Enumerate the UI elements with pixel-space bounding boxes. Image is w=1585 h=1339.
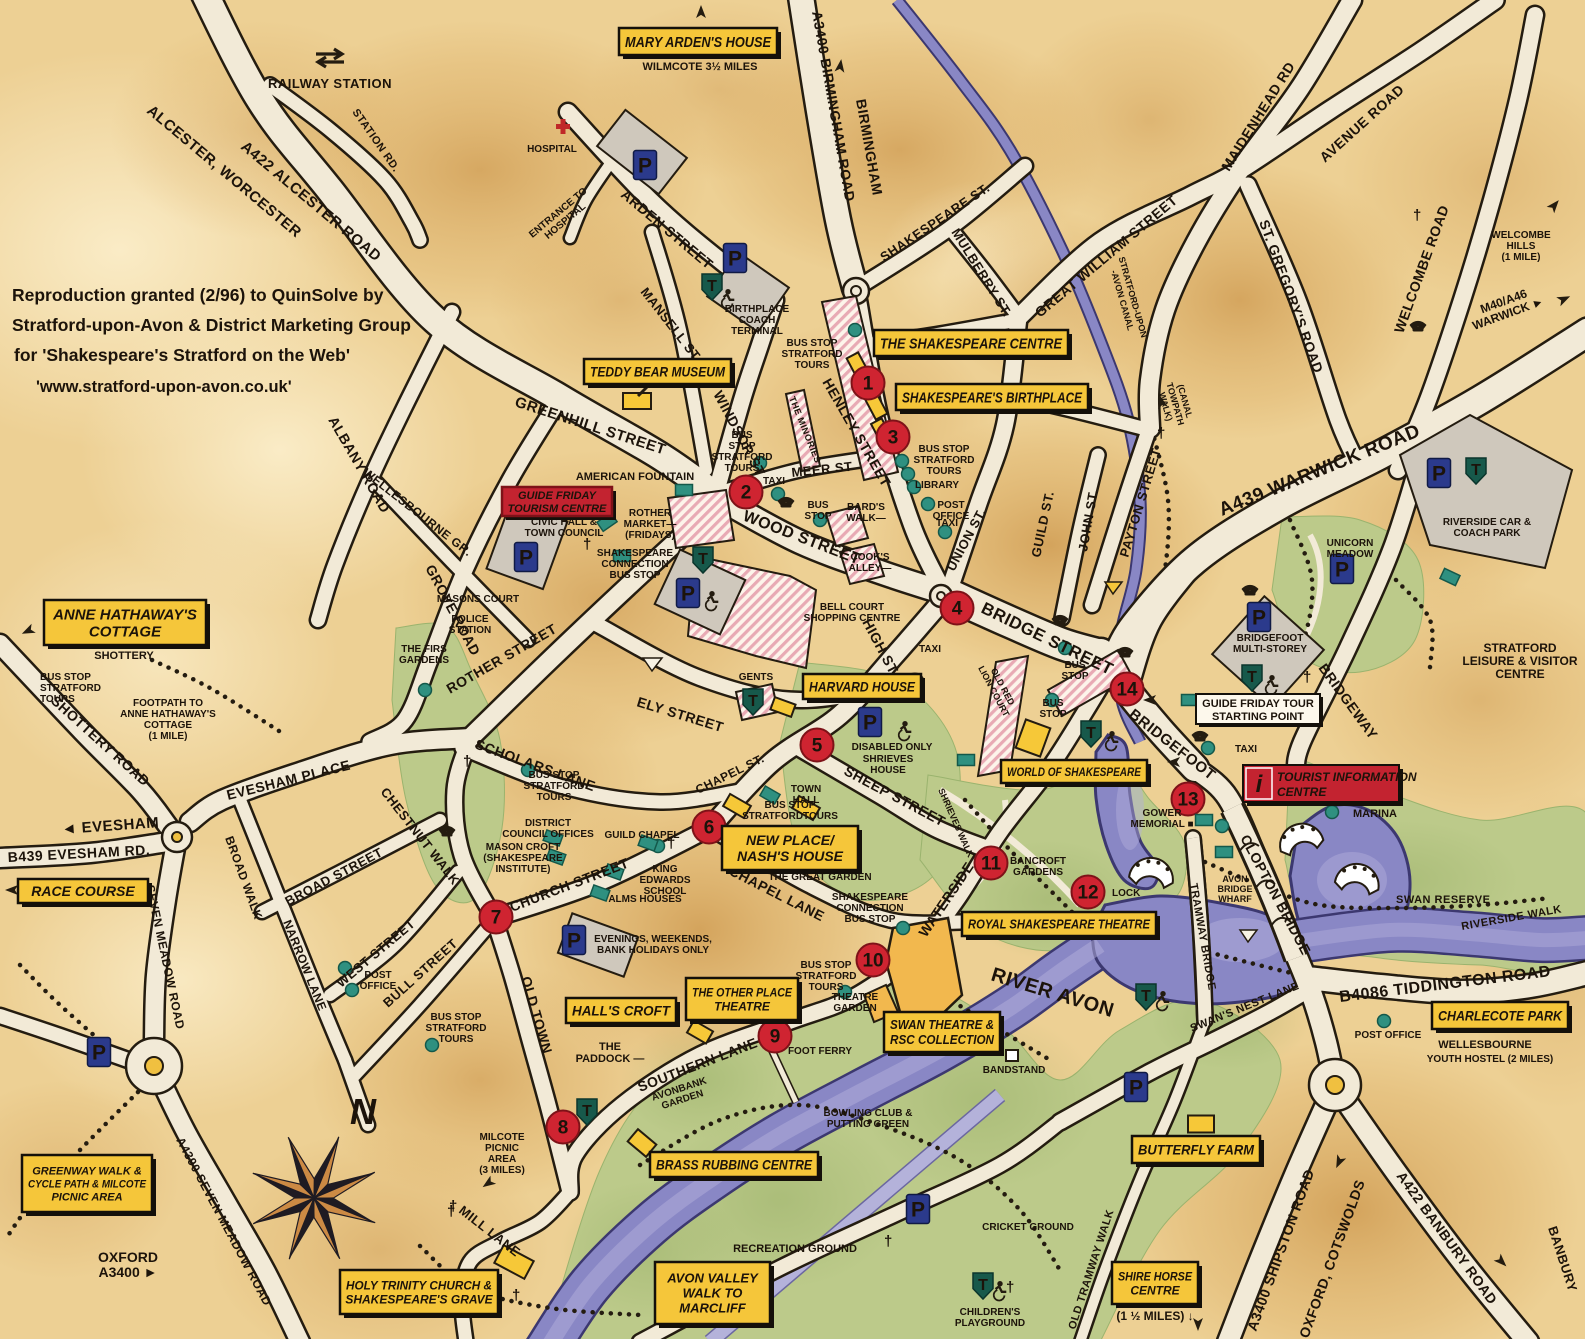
svg-text:GREENWAY WALK &: GREENWAY WALK & xyxy=(32,1166,142,1178)
svg-text:10: 10 xyxy=(862,951,883,972)
svg-text:(FRIDAYS): (FRIDAYS) xyxy=(625,530,675,541)
svg-text:POST: POST xyxy=(937,500,964,511)
svg-text:GARDEN: GARDEN xyxy=(833,1003,876,1014)
svg-text:LOCK: LOCK xyxy=(1112,888,1141,899)
svg-text:NEW PLACE/: NEW PLACE/ xyxy=(746,832,836,848)
svg-text:POST OFFICE: POST OFFICE xyxy=(1355,1030,1422,1041)
svg-text:BANDSTAND: BANDSTAND xyxy=(983,1065,1046,1076)
svg-text:BUS STOP: BUS STOP xyxy=(801,960,852,971)
svg-text:T: T xyxy=(978,1277,988,1294)
svg-text:P: P xyxy=(1129,1077,1143,1100)
svg-text:BUS: BUS xyxy=(807,500,828,511)
svg-text:TOURIST INFORMATION: TOURIST INFORMATION xyxy=(1277,770,1417,784)
svg-text:'www.stratford-upon-avon.co.uk: 'www.stratford-upon-avon.co.uk' xyxy=(36,378,292,396)
svg-text:TOURS: TOURS xyxy=(537,792,572,803)
svg-text:3: 3 xyxy=(888,428,899,449)
svg-text:HOUSE: HOUSE xyxy=(870,765,906,776)
svg-text:STRATFORD: STRATFORD xyxy=(796,971,857,982)
svg-text:THE: THE xyxy=(599,1041,621,1053)
svg-text:COACH: COACH xyxy=(739,315,776,326)
svg-text:P: P xyxy=(681,583,695,606)
svg-text:WELLESBOURNE: WELLESBOURNE xyxy=(1438,1039,1532,1051)
svg-text:CONNECTION: CONNECTION xyxy=(836,903,903,914)
svg-text:WILMCOTE 3½ MILES: WILMCOTE 3½ MILES xyxy=(643,61,758,73)
svg-text:ANNE HATHAWAY'S: ANNE HATHAWAY'S xyxy=(120,709,216,720)
svg-text:GUIDE FRIDAY: GUIDE FRIDAY xyxy=(518,490,598,502)
svg-text:FOOTPATH TO: FOOTPATH TO xyxy=(133,698,203,709)
svg-text:BUS STOP: BUS STOP xyxy=(919,444,970,455)
svg-text:AVON: AVON xyxy=(1222,874,1247,884)
svg-text:STOP: STOP xyxy=(728,441,755,452)
svg-text:TOURS: TOURS xyxy=(725,463,760,474)
svg-text:TERMINAL: TERMINAL xyxy=(731,326,783,337)
svg-text:P: P xyxy=(728,248,742,271)
svg-text:TEDDY BEAR MUSEUM: TEDDY BEAR MUSEUM xyxy=(590,364,725,380)
svg-text:EDWARDS: EDWARDS xyxy=(639,875,690,886)
svg-text:CRICKET GROUND: CRICKET GROUND xyxy=(982,1222,1074,1233)
svg-text:WORLD OF SHAKESPEARE: WORLD OF SHAKESPEARE xyxy=(1007,765,1142,779)
svg-text:STRATFORD: STRATFORD xyxy=(1483,641,1556,655)
svg-text:†: † xyxy=(1157,425,1165,442)
svg-text:ANNE HATHAWAY'S: ANNE HATHAWAY'S xyxy=(52,606,197,623)
svg-text:GOWER: GOWER xyxy=(1143,808,1183,819)
svg-text:BUS STOP: BUS STOP xyxy=(431,1012,482,1023)
svg-text:TAXI: TAXI xyxy=(763,476,785,487)
svg-text:N: N xyxy=(350,1091,377,1132)
svg-text:4: 4 xyxy=(952,599,963,620)
svg-text:STRATFORD: STRATFORD xyxy=(712,452,773,463)
svg-text:†: † xyxy=(1303,669,1311,686)
svg-text:BUS STOP: BUS STOP xyxy=(529,770,580,781)
svg-text:12: 12 xyxy=(1077,883,1098,904)
svg-text:6: 6 xyxy=(704,818,715,839)
svg-text:AMERICAN FOUNTAIN: AMERICAN FOUNTAIN xyxy=(576,471,694,483)
svg-text:STARTING POINT: STARTING POINT xyxy=(1212,711,1304,723)
svg-text:STRATFORD: STRATFORD xyxy=(40,683,101,694)
svg-text:MARY ARDEN'S HOUSE: MARY ARDEN'S HOUSE xyxy=(625,34,772,51)
svg-text:COTTAGE: COTTAGE xyxy=(144,720,192,731)
svg-text:P: P xyxy=(638,155,652,178)
svg-text:HOLY TRINITY CHURCH &: HOLY TRINITY CHURCH & xyxy=(346,1278,492,1292)
svg-text:CENTRE: CENTRE xyxy=(1130,1283,1180,1297)
svg-text:T: T xyxy=(707,278,717,295)
svg-text:MASONS COURT: MASONS COURT xyxy=(437,594,519,605)
svg-text:MILCOTE: MILCOTE xyxy=(480,1132,525,1143)
svg-text:BUS STOP: BUS STOP xyxy=(610,570,661,581)
svg-text:MARKET—: MARKET— xyxy=(624,519,677,530)
svg-text:†: † xyxy=(1413,207,1421,224)
svg-text:BANCROFT: BANCROFT xyxy=(1010,856,1066,867)
svg-text:CHILDREN'S: CHILDREN'S xyxy=(960,1307,1021,1318)
svg-text:T: T xyxy=(1086,725,1096,742)
svg-text:ALMS HOUSES: ALMS HOUSES xyxy=(608,894,682,905)
svg-text:TAXI: TAXI xyxy=(936,518,958,529)
svg-text:PICNIC AREA: PICNIC AREA xyxy=(51,1192,122,1204)
svg-text:9: 9 xyxy=(770,1027,781,1048)
svg-text:AREA: AREA xyxy=(488,1154,516,1165)
svg-text:CENTRE: CENTRE xyxy=(1495,667,1544,681)
svg-text:SHAKESPEARE'S GRAVE: SHAKESPEARE'S GRAVE xyxy=(345,1292,493,1306)
svg-text:BUS: BUS xyxy=(1042,698,1063,709)
svg-text:TOURS: TOURS xyxy=(809,982,844,993)
svg-text:MEADOW: MEADOW xyxy=(1327,549,1374,560)
svg-text:BRASS RUBBING CENTRE: BRASS RUBBING CENTRE xyxy=(656,1157,813,1173)
svg-text:5: 5 xyxy=(812,736,823,757)
svg-text:T: T xyxy=(698,551,708,568)
svg-text:Stratford-upon-Avon & District: Stratford-upon-Avon & District Marketing… xyxy=(12,315,411,335)
svg-text:THE FIRS: THE FIRS xyxy=(401,644,447,655)
svg-text:TOURS: TOURS xyxy=(40,694,75,705)
svg-text:8: 8 xyxy=(558,1118,569,1139)
svg-text:NASH'S HOUSE: NASH'S HOUSE xyxy=(737,848,844,864)
svg-text:SHOPPING CENTRE: SHOPPING CENTRE xyxy=(804,613,901,624)
svg-text:RIVERSIDE CAR &: RIVERSIDE CAR & xyxy=(1443,517,1531,528)
svg-text:BUS STOP: BUS STOP xyxy=(787,338,838,349)
svg-text:BUS STOP: BUS STOP xyxy=(845,914,896,925)
svg-text:KING: KING xyxy=(653,864,678,875)
svg-text:T: T xyxy=(1247,669,1257,686)
svg-text:BUS: BUS xyxy=(1064,660,1085,671)
svg-text:(1 MILE): (1 MILE) xyxy=(1502,252,1541,263)
svg-text:(1 ½ MILES) ↓: (1 ½ MILES) ↓ xyxy=(1116,1309,1193,1323)
svg-text:P: P xyxy=(911,1199,925,1222)
svg-text:EVENINGS, WEEKENDS,: EVENINGS, WEEKENDS, xyxy=(594,934,712,945)
svg-text:BANK HOLIDAYS ONLY: BANK HOLIDAYS ONLY xyxy=(597,945,709,956)
svg-text:BUS: BUS xyxy=(731,430,752,441)
svg-text:DISABLED ONLY: DISABLED ONLY xyxy=(852,742,933,753)
svg-text:RSC COLLECTION: RSC COLLECTION xyxy=(890,1032,995,1047)
svg-text:TOURS: TOURS xyxy=(795,360,830,371)
svg-text:BRIDGEFOOT: BRIDGEFOOT xyxy=(1237,633,1304,644)
svg-text:P: P xyxy=(519,547,533,570)
svg-text:ROTHER: ROTHER xyxy=(629,508,672,519)
svg-text:TOWN: TOWN xyxy=(791,784,821,795)
svg-text:THE SHAKESPEARE CENTRE: THE SHAKESPEARE CENTRE xyxy=(880,335,1063,352)
svg-text:GARDENS: GARDENS xyxy=(1013,867,1063,878)
svg-text:T: T xyxy=(582,1103,592,1120)
svg-text:STRATFORDTOURS: STRATFORDTOURS xyxy=(742,811,838,822)
svg-text:(3 MILES): (3 MILES) xyxy=(479,1165,525,1176)
svg-text:GARDENS: GARDENS xyxy=(399,655,449,666)
svg-text:GUILD CHAPEL: GUILD CHAPEL xyxy=(605,830,680,841)
svg-text:WALK TO: WALK TO xyxy=(683,1286,743,1301)
svg-text:P: P xyxy=(1432,463,1446,486)
svg-text:BRIDGE: BRIDGE xyxy=(1217,884,1252,894)
svg-text:STOP: STOP xyxy=(1039,709,1066,720)
svg-text:SHAKESPEARE: SHAKESPEARE xyxy=(597,548,673,559)
svg-text:COACH PARK: COACH PARK xyxy=(1453,528,1521,539)
svg-text:T: T xyxy=(1471,462,1481,479)
svg-text:†: † xyxy=(884,1233,892,1250)
svg-text:SWAN RESERVE: SWAN RESERVE xyxy=(1396,894,1490,906)
svg-text:BUTTERFLY FARM: BUTTERFLY FARM xyxy=(1138,1142,1254,1158)
svg-text:STOP: STOP xyxy=(1061,671,1088,682)
svg-text:SHAKESPEARE'S BIRTHPLACE: SHAKESPEARE'S BIRTHPLACE xyxy=(902,389,1083,406)
svg-text:†: † xyxy=(463,753,471,770)
svg-text:T: T xyxy=(748,693,758,710)
svg-text:BIRTHPLACE: BIRTHPLACE xyxy=(725,304,790,315)
svg-text:INSTITUTE): INSTITUTE) xyxy=(496,864,551,875)
svg-text:for 'Shakespeare's Stratford o: for 'Shakespeare's Stratford on the Web' xyxy=(14,345,350,365)
svg-text:T: T xyxy=(1141,988,1151,1005)
svg-text:THE OTHER PLACE: THE OTHER PLACE xyxy=(692,985,793,999)
svg-text:P: P xyxy=(567,930,581,953)
svg-text:WELCOMBE: WELCOMBE xyxy=(1491,230,1551,241)
svg-text:†: † xyxy=(1006,1279,1014,1296)
svg-text:COTTAGE: COTTAGE xyxy=(89,623,162,640)
svg-text:STRATFORD: STRATFORD xyxy=(914,455,975,466)
svg-text:11: 11 xyxy=(981,854,1002,875)
svg-text:P: P xyxy=(863,712,877,735)
svg-text:GENTS: GENTS xyxy=(739,672,774,683)
svg-text:SHOTTERY: SHOTTERY xyxy=(94,650,154,662)
svg-text:Reproduction granted (2/96) to: Reproduction granted (2/96) to QuinSolve… xyxy=(12,285,384,305)
svg-text:DISTRICT: DISTRICT xyxy=(525,818,571,829)
svg-text:THEATRE: THEATRE xyxy=(714,999,771,1013)
svg-text:HARVARD HOUSE: HARVARD HOUSE xyxy=(809,679,916,695)
svg-text:CYCLE PATH & MILCOTE: CYCLE PATH & MILCOTE xyxy=(28,1179,147,1191)
svg-text:STRATFORD: STRATFORD xyxy=(426,1023,487,1034)
svg-text:COOK'S: COOK'S xyxy=(850,552,889,563)
svg-text:WHARF: WHARF xyxy=(1218,894,1252,904)
svg-text:A3400 ►: A3400 ► xyxy=(98,1264,157,1280)
svg-text:(1 MILE): (1 MILE) xyxy=(149,731,188,742)
svg-text:7: 7 xyxy=(491,908,502,929)
svg-text:STRATFORD: STRATFORD xyxy=(782,349,843,360)
svg-text:SHAKESPEARE: SHAKESPEARE xyxy=(832,892,908,903)
svg-text:BARD'S: BARD'S xyxy=(847,502,885,513)
svg-text:TOWN COUNCIL: TOWN COUNCIL xyxy=(525,528,604,539)
svg-text:TAXI: TAXI xyxy=(1235,744,1257,755)
svg-text:BOWLING CLUB &: BOWLING CLUB & xyxy=(824,1108,913,1119)
svg-text:BUS STOP: BUS STOP xyxy=(765,800,816,811)
svg-text:SHIRE HORSE: SHIRE HORSE xyxy=(1118,1269,1193,1283)
svg-text:HALL'S CROFT: HALL'S CROFT xyxy=(572,1003,671,1019)
svg-text:RECREATION GROUND: RECREATION GROUND xyxy=(733,1243,857,1255)
svg-text:1: 1 xyxy=(863,374,874,395)
svg-text:TOURS: TOURS xyxy=(927,466,962,477)
svg-text:PLAYGROUND: PLAYGROUND xyxy=(955,1318,1025,1329)
svg-text:ROYAL SHAKESPEARE THEATRE: ROYAL SHAKESPEARE THEATRE xyxy=(968,917,1150,932)
svg-text:OFFICE: OFFICE xyxy=(360,981,397,992)
svg-text:POLICE: POLICE xyxy=(451,614,489,625)
svg-text:FOOT FERRY: FOOT FERRY xyxy=(788,1046,852,1057)
svg-text:CONNECTION: CONNECTION xyxy=(601,559,668,570)
svg-text:WALK—: WALK— xyxy=(846,513,885,524)
svg-text:P: P xyxy=(1335,559,1349,582)
svg-text:UNICORN: UNICORN xyxy=(1327,538,1374,549)
svg-text:MARCLIFF: MARCLIFF xyxy=(679,1301,746,1316)
svg-text:GUIDE FRIDAY TOUR: GUIDE FRIDAY TOUR xyxy=(1202,698,1314,710)
svg-text:MASON CROFT: MASON CROFT xyxy=(486,842,560,853)
svg-text:AVON VALLEY: AVON VALLEY xyxy=(666,1271,759,1286)
svg-text:THEATRE: THEATRE xyxy=(832,992,879,1003)
svg-text:2: 2 xyxy=(741,483,752,504)
svg-text:TOURS: TOURS xyxy=(439,1034,474,1045)
svg-text:PICNIC: PICNIC xyxy=(485,1143,519,1154)
svg-text:†: † xyxy=(449,1198,457,1215)
svg-text:†: † xyxy=(512,1287,520,1304)
svg-text:LEISURE & VISITOR: LEISURE & VISITOR xyxy=(1462,654,1577,668)
svg-text:CENTRE: CENTRE xyxy=(1277,785,1327,799)
svg-text:YOUTH HOSTEL (2 MILES): YOUTH HOSTEL (2 MILES) xyxy=(1427,1054,1554,1065)
svg-text:COUNCIL OFFICES: COUNCIL OFFICES xyxy=(502,829,594,840)
svg-text:MEMORIAL ■: MEMORIAL ■ xyxy=(1130,819,1193,830)
svg-text:P: P xyxy=(1252,607,1266,630)
svg-text:(SHAKESPEARE: (SHAKESPEARE xyxy=(483,853,563,864)
svg-text:ALLEY—: ALLEY— xyxy=(849,563,892,574)
svg-text:STRATFORD: STRATFORD xyxy=(524,781,585,792)
svg-text:MARINA: MARINA xyxy=(1353,808,1397,820)
svg-text:LIBRARY: LIBRARY xyxy=(915,480,959,491)
svg-text:P: P xyxy=(92,1042,106,1065)
svg-text:MULTI-STOREY: MULTI-STOREY xyxy=(1233,644,1307,655)
svg-text:BUS STOP: BUS STOP xyxy=(40,672,91,683)
svg-text:SHRIEVES: SHRIEVES xyxy=(863,754,914,765)
svg-text:HOSPITAL: HOSPITAL xyxy=(527,144,577,155)
svg-text:CHARLECOTE PARK: CHARLECOTE PARK xyxy=(1438,1008,1563,1024)
svg-text:RAILWAY STATION: RAILWAY STATION xyxy=(268,76,392,91)
svg-text:PUTTING GREEN: PUTTING GREEN xyxy=(827,1119,909,1130)
svg-text:TOURISM CENTRE: TOURISM CENTRE xyxy=(508,503,607,515)
svg-text:SWAN THEATRE &: SWAN THEATRE & xyxy=(890,1017,994,1032)
svg-text:PADDOCK —: PADDOCK — xyxy=(576,1053,645,1065)
svg-text:OXFORD: OXFORD xyxy=(98,1249,158,1265)
svg-text:HILLS: HILLS xyxy=(1507,241,1536,252)
svg-text:RACE COURSE: RACE COURSE xyxy=(31,883,135,899)
svg-text:POST: POST xyxy=(364,970,391,981)
svg-text:BELL COURT: BELL COURT xyxy=(820,602,884,613)
svg-text:14: 14 xyxy=(1116,680,1138,701)
svg-text:STOP: STOP xyxy=(804,511,831,522)
svg-text:TAXI: TAXI xyxy=(919,644,941,655)
svg-text:STATION: STATION xyxy=(449,625,491,636)
